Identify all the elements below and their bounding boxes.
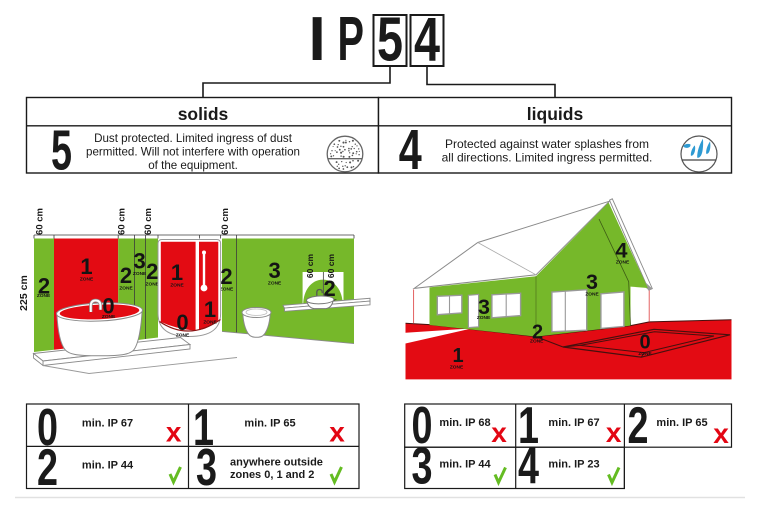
svg-text:0: 0: [639, 332, 650, 354]
svg-text:ZONE: ZONE: [176, 332, 190, 338]
svg-text:min. IP 44: min. IP 44: [82, 460, 134, 472]
svg-text:60 cm: 60 cm: [35, 208, 46, 235]
svg-text:x: x: [606, 417, 622, 448]
svg-text:4: 4: [518, 438, 539, 496]
svg-text:4: 4: [414, 6, 440, 75]
svg-text:1: 1: [80, 254, 92, 279]
svg-text:ZONE: ZONE: [616, 260, 630, 266]
svg-text:ZONE: ZONE: [530, 338, 544, 344]
svg-text:anywhere outside: anywhere outside: [230, 457, 323, 469]
svg-text:ZONE: ZONE: [450, 365, 464, 371]
svg-text:Dust protected. Limited ingres: Dust protected. Limited ingress of dust: [94, 132, 293, 145]
svg-text:of the equipment.: of the equipment.: [148, 159, 238, 172]
svg-text:liquids: liquids: [527, 104, 584, 124]
svg-text:5: 5: [51, 119, 72, 183]
svg-text:ZONE: ZONE: [37, 293, 51, 299]
svg-text:5: 5: [377, 6, 403, 75]
svg-text:min. IP 65: min. IP 65: [656, 417, 707, 429]
svg-text:3: 3: [412, 438, 433, 496]
svg-text:3: 3: [268, 258, 280, 283]
svg-text:x: x: [491, 417, 507, 448]
svg-text:min. IP 67: min. IP 67: [548, 417, 599, 429]
svg-text:ZONE: ZONE: [80, 277, 94, 283]
svg-text:1: 1: [171, 260, 183, 285]
svg-text:60 cm: 60 cm: [220, 208, 231, 235]
svg-text:x: x: [166, 417, 182, 448]
svg-text:1: 1: [204, 297, 216, 322]
svg-text:Protected against water splash: Protected against water splashes from: [445, 137, 649, 151]
svg-text:1: 1: [452, 345, 463, 367]
svg-text:60 cm: 60 cm: [305, 254, 315, 279]
svg-text:60 cm: 60 cm: [326, 254, 336, 279]
svg-text:ZONE: ZONE: [477, 315, 491, 321]
svg-text:0: 0: [176, 310, 188, 335]
svg-text:ZONE: ZONE: [102, 314, 116, 320]
svg-text:ZONE: ZONE: [203, 320, 217, 326]
svg-text:I: I: [309, 5, 326, 74]
svg-text:min. IP 65: min. IP 65: [244, 418, 295, 430]
svg-text:3: 3: [133, 249, 145, 274]
svg-text:3: 3: [586, 270, 598, 294]
svg-text:x: x: [713, 418, 729, 449]
svg-text:60 cm: 60 cm: [143, 208, 154, 235]
svg-text:min. IP 67: min. IP 67: [82, 418, 133, 430]
svg-text:60 cm: 60 cm: [117, 208, 128, 235]
svg-text:3: 3: [196, 439, 217, 497]
svg-text:ZONE: ZONE: [220, 287, 234, 293]
svg-text:ZONE: ZONE: [585, 291, 599, 297]
svg-text:ZONE: ZONE: [170, 283, 184, 289]
svg-text:zones 0, 1 and 2: zones 0, 1 and 2: [230, 469, 314, 481]
svg-text:min. IP 44: min. IP 44: [439, 459, 491, 471]
svg-text:P: P: [338, 5, 365, 74]
svg-text:225 cm: 225 cm: [18, 275, 30, 311]
svg-text:2: 2: [628, 397, 649, 455]
svg-text:2: 2: [146, 259, 158, 284]
svg-text:4: 4: [616, 239, 628, 263]
svg-text:permitted. Will not interfere: permitted. Will not interfere with opera…: [86, 146, 300, 159]
svg-text:2: 2: [220, 264, 232, 289]
svg-text:x: x: [329, 417, 345, 448]
svg-text:min. IP 68: min. IP 68: [439, 417, 490, 429]
svg-text:2: 2: [120, 263, 132, 288]
svg-text:all directions. Limited ingres: all directions. Limited ingress permitte…: [442, 151, 653, 165]
svg-text:ZONE: ZONE: [133, 271, 147, 277]
svg-text:ZONE: ZONE: [119, 286, 133, 292]
svg-text:solids: solids: [178, 104, 229, 124]
svg-text:ZONE: ZONE: [638, 351, 652, 357]
svg-text:min. IP 23: min. IP 23: [548, 459, 599, 471]
svg-text:ZONE: ZONE: [268, 281, 282, 287]
svg-text:2: 2: [37, 439, 58, 497]
svg-text:4: 4: [399, 118, 422, 181]
